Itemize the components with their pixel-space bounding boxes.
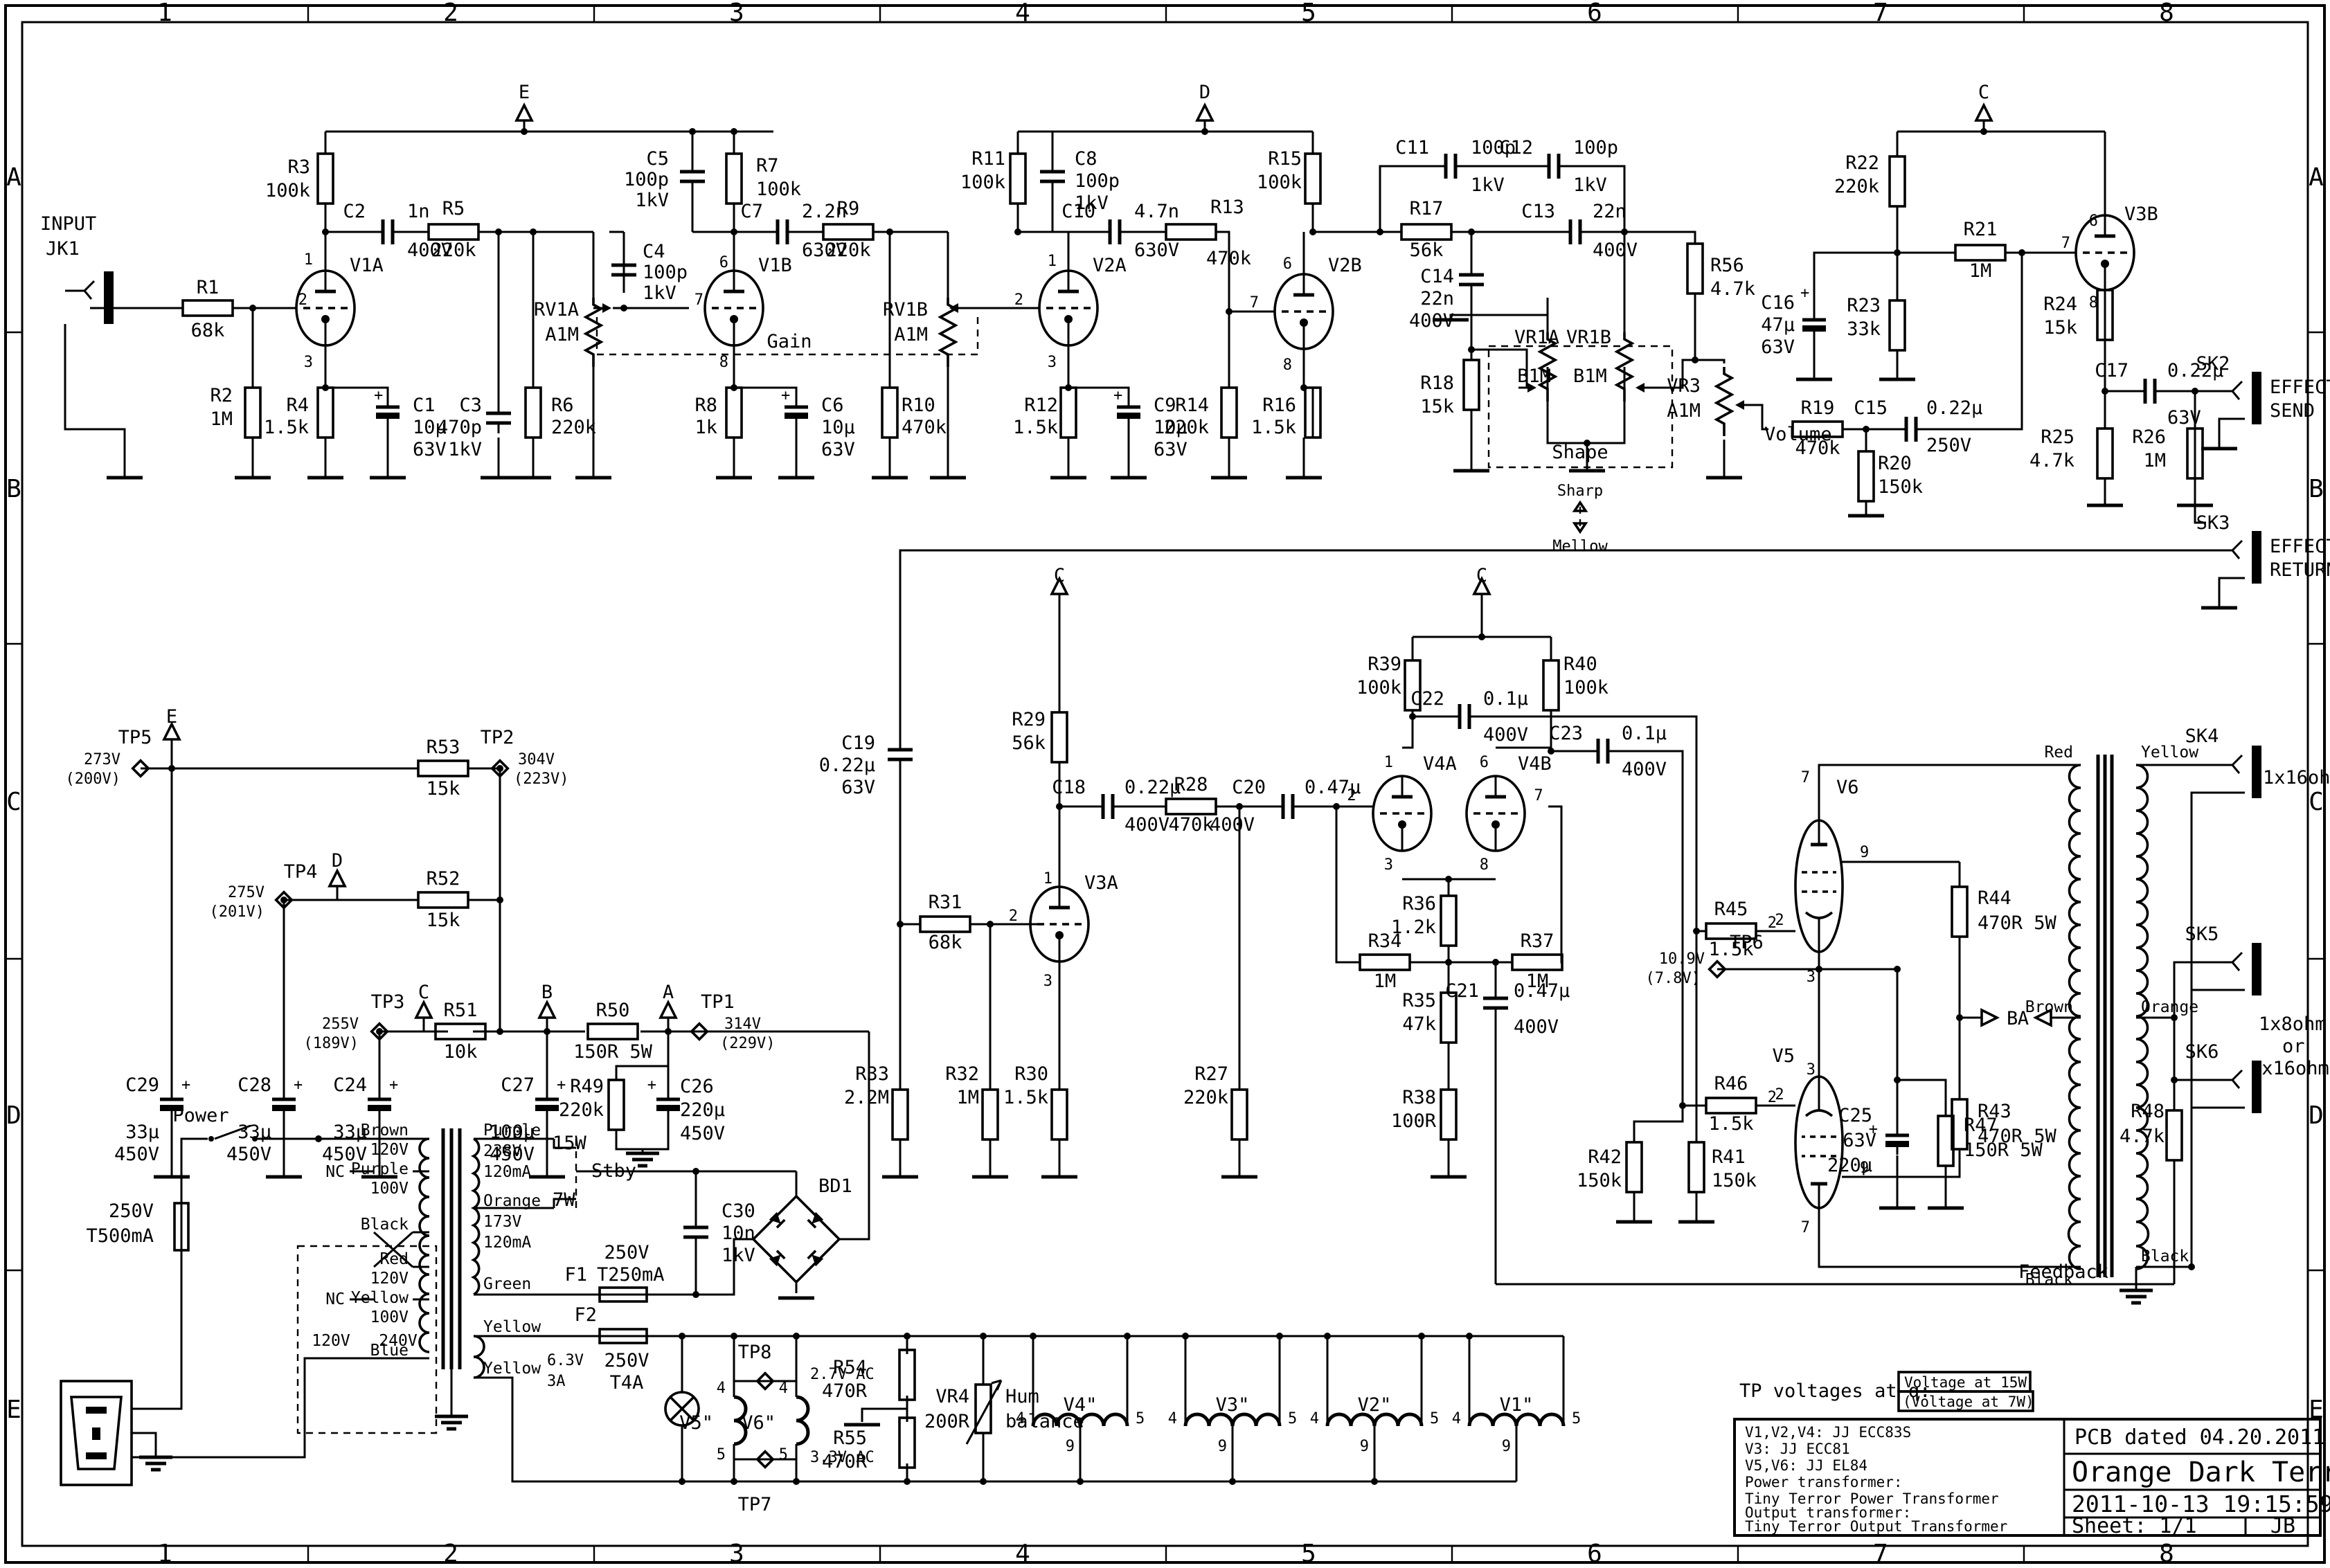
label-jk1: JK1 xyxy=(46,238,80,260)
label-c6v: 10µ xyxy=(821,417,855,438)
pin: 4 xyxy=(717,1380,726,1397)
label-c20u: 400V xyxy=(1210,814,1255,836)
label-r30v: 1.5k xyxy=(1003,1087,1048,1108)
label-r10v: 470k xyxy=(902,417,947,438)
label-stby: Stby xyxy=(591,1160,636,1182)
pt-120b: 120V xyxy=(370,1270,409,1288)
label-r51: R51 xyxy=(444,1000,478,1021)
cap-C11 xyxy=(1435,154,1466,179)
label-fx-ret-2: RETURN xyxy=(2270,559,2330,581)
resistor-R37 xyxy=(1512,955,1562,970)
label-c19: C19 xyxy=(841,732,875,754)
tube-V4B xyxy=(1467,776,1525,851)
col-4-bot: 4 xyxy=(1015,1540,1030,1568)
row-C-right: C xyxy=(2309,788,2324,816)
label-r20: R20 xyxy=(1878,453,1912,474)
pin: 4 xyxy=(1452,1410,1461,1427)
label-r12: R12 xyxy=(1024,395,1058,416)
label-r53: R53 xyxy=(427,737,460,758)
label-c1-plus: + xyxy=(374,387,383,404)
label-c29u: 450V xyxy=(114,1144,159,1165)
pin: 2 xyxy=(1014,291,1023,309)
label-or: or xyxy=(2282,1036,2305,1057)
label-r3: R3 xyxy=(287,156,310,178)
label-r17: R17 xyxy=(1410,198,1444,219)
label-r34v: 1M xyxy=(1374,971,1397,992)
label-r26v: 1M xyxy=(2143,450,2166,471)
label-sk4: SK4 xyxy=(2185,726,2219,747)
label-c30u: 1kV xyxy=(722,1245,755,1266)
pin: 7 xyxy=(1801,769,1810,786)
label-c2v: 1n xyxy=(407,201,430,222)
label-c18v: 0.22µ xyxy=(1124,777,1181,798)
net-E: E xyxy=(519,82,530,103)
label-c6: C6 xyxy=(821,395,844,416)
label-r21: R21 xyxy=(1964,219,1998,240)
ot-brown: Brown xyxy=(2025,998,2073,1016)
cap-C2 xyxy=(373,219,403,244)
label-c16: C16 xyxy=(1761,292,1795,314)
cap-C27 xyxy=(535,1091,559,1119)
label-r1: R1 xyxy=(197,277,219,298)
pin: 7 xyxy=(694,291,704,309)
col-8-top: 8 xyxy=(2159,0,2174,27)
label-r16v: 1.5k xyxy=(1251,417,1296,438)
pin: 1 xyxy=(304,251,313,269)
pin: 7 xyxy=(1250,294,1259,312)
cap-C24 xyxy=(368,1091,391,1119)
label-r13: R13 xyxy=(1210,197,1244,218)
cap-C10 xyxy=(1100,219,1130,244)
label-r50: R50 xyxy=(596,1000,630,1021)
label-c11: C11 xyxy=(1395,137,1429,159)
net-A-arrow-psu xyxy=(661,1002,676,1018)
label-c28: C28 xyxy=(238,1074,271,1096)
pin: 8 xyxy=(1480,856,1489,874)
input-jack-JK1 xyxy=(65,271,114,324)
label-power: Power xyxy=(172,1105,228,1126)
net-E-psu: E xyxy=(166,706,177,728)
label-bd1: BD1 xyxy=(818,1175,852,1197)
resistor-R33 xyxy=(893,1090,908,1139)
pin: 4 xyxy=(1168,1410,1177,1427)
resistor-R15 xyxy=(1305,154,1320,204)
label-v4h: V4" xyxy=(1064,1394,1097,1416)
pt-green: Green xyxy=(483,1275,531,1293)
cap-C21 xyxy=(1483,988,1508,1018)
label-r4: R4 xyxy=(286,395,309,416)
label-r35v: 47k xyxy=(1402,1013,1436,1035)
label-vr4v: 200R xyxy=(924,1411,970,1432)
label-vr3: VR3 xyxy=(1667,375,1701,397)
col-5-bot: 5 xyxy=(1301,1540,1316,1568)
label-tp3: TP3 xyxy=(371,991,405,1013)
row-A-left: A xyxy=(6,163,21,192)
pin: 5 xyxy=(1136,1410,1145,1427)
label-tp8: TP8 xyxy=(738,1342,772,1363)
label-r2v: 1M xyxy=(210,408,233,430)
label-r38: R38 xyxy=(1402,1087,1436,1108)
label-r34: R34 xyxy=(1368,930,1402,952)
resistor-R56 xyxy=(1687,244,1703,294)
pin: 3 xyxy=(304,354,313,371)
resistor-R12 xyxy=(1061,388,1076,438)
pt-100a: 100V xyxy=(370,1180,409,1198)
label-r38v: 100R xyxy=(1391,1110,1437,1132)
pin: 5 xyxy=(1572,1410,1581,1427)
label-r28: R28 xyxy=(1174,774,1208,795)
resistor-R31 xyxy=(920,917,970,932)
pt-sorange: Orange xyxy=(483,1192,541,1210)
resistor-R50 xyxy=(588,1024,638,1039)
tp-note-7w: (Voltage at 7W) xyxy=(1903,1394,2034,1410)
pt-63v: 6.3V xyxy=(547,1352,584,1369)
resistor-R44 xyxy=(1952,887,1967,937)
tube-V2A xyxy=(1039,271,1097,345)
pt-120a: 120V xyxy=(370,1141,409,1159)
label-c29v: 33µ xyxy=(125,1121,159,1143)
label-c8v: 100p xyxy=(1075,170,1120,192)
label-tp3-v1: 255V xyxy=(322,1016,359,1033)
resistor-R28 xyxy=(1166,799,1216,814)
label-f1: F1 xyxy=(564,1264,587,1286)
label-c14: C14 xyxy=(1420,266,1454,287)
resistor-R41 xyxy=(1689,1142,1704,1192)
label-tp5: TP5 xyxy=(118,727,152,748)
label-r27v: 220k xyxy=(1183,1087,1228,1108)
label-c21v: 0.47µ xyxy=(1514,980,1570,1002)
label-r28v: 470k xyxy=(1168,814,1213,836)
label-c27-plus: + xyxy=(557,1076,566,1094)
net-C-3: C xyxy=(1476,565,1487,586)
col-7-bot: 7 xyxy=(1873,1540,1888,1568)
pin: 1 xyxy=(1043,870,1052,887)
pin: 5 xyxy=(717,1446,726,1463)
cap-C8 xyxy=(1040,161,1065,192)
net-D-arrow xyxy=(1197,105,1212,120)
label-v3h: V3" xyxy=(1216,1394,1250,1416)
label-c17: C17 xyxy=(2095,360,2129,381)
pt-blue: Blue xyxy=(370,1342,409,1360)
label-c23u: 400V xyxy=(1622,759,1667,780)
cap-C20 xyxy=(1273,794,1303,819)
resistor-R53 xyxy=(418,761,468,776)
label-r31: R31 xyxy=(929,892,962,913)
pin: 9 xyxy=(1218,1438,1227,1455)
label-r56: R56 xyxy=(1710,255,1744,276)
pin: 4 xyxy=(1016,1410,1025,1427)
pin: 4 xyxy=(1310,1410,1319,1427)
label-r22: R22 xyxy=(1845,152,1879,174)
pin: 2 xyxy=(298,291,307,309)
cap-C13 xyxy=(1560,219,1590,244)
col-3-top: 3 xyxy=(729,0,744,27)
resistor-R18 xyxy=(1464,360,1479,410)
label-r51v: 10k xyxy=(444,1041,478,1063)
label-vr3v: A1M xyxy=(1667,400,1701,422)
label-fuse-v: 250V xyxy=(109,1200,154,1222)
row-D-right: D xyxy=(2309,1101,2324,1130)
label-c14v: 22n xyxy=(1420,288,1454,309)
label-c15: C15 xyxy=(1854,397,1888,419)
label-r7v: 100k xyxy=(756,179,801,200)
resistor-R40 xyxy=(1543,660,1559,710)
label-tp4: TP4 xyxy=(284,861,318,883)
label-c19v: 0.22µ xyxy=(819,755,875,776)
pot-VR1B-wiper xyxy=(1636,383,1654,393)
label-tp2-v1: 304V xyxy=(518,751,555,768)
resistor-R1 xyxy=(183,300,233,316)
label-r23v: 33k xyxy=(1847,318,1881,340)
label-r42: R42 xyxy=(1588,1146,1622,1168)
resistor-R3 xyxy=(318,154,333,204)
label-r4v: 1.5k xyxy=(264,417,309,438)
tube-V6 xyxy=(1795,820,1843,952)
label-r25v: 4.7k xyxy=(2029,450,2074,471)
label-r44: R44 xyxy=(1978,887,2011,909)
label-r45: R45 xyxy=(1714,899,1748,920)
label-v5: V5 xyxy=(1772,1045,1795,1067)
pt-spurple: Purple xyxy=(483,1121,541,1139)
net-D: D xyxy=(1199,82,1210,103)
junction-dots xyxy=(168,128,2198,1485)
label-15w: 15W xyxy=(553,1133,587,1154)
label-r23: R23 xyxy=(1847,295,1881,316)
title-block: V1,V2,V4: JJ ECC83S V3: JJ ECC81 V5,V6: … xyxy=(1735,1419,2330,1538)
resistor-R13 xyxy=(1166,224,1216,240)
label-r42v: 150k xyxy=(1577,1170,1622,1191)
pt-173: 173V xyxy=(483,1213,522,1231)
label-r12v: 1.5k xyxy=(1013,417,1058,438)
power-transformer xyxy=(420,1128,484,1378)
pin: 9 xyxy=(1066,1438,1075,1455)
cap-C14 xyxy=(1459,264,1484,295)
resistor-R25 xyxy=(2097,429,2113,478)
tb-author: JB xyxy=(2270,1514,2295,1538)
label-r15v: 100k xyxy=(1257,172,1302,193)
label-r7: R7 xyxy=(756,155,779,177)
label-c6u: 63V xyxy=(821,439,855,460)
label-fx-send-1: EFFECT xyxy=(2270,377,2330,398)
label-c1: C1 xyxy=(413,395,436,416)
label-r54v: 470R xyxy=(822,1380,868,1402)
label-c1u: 63V xyxy=(413,439,447,460)
label-c30: C30 xyxy=(722,1200,755,1222)
resistor-R38 xyxy=(1441,1090,1456,1139)
resistor-R34 xyxy=(1360,955,1410,970)
label-216ohm: 2x16ohm xyxy=(2250,1058,2329,1079)
pin: 2 xyxy=(1347,787,1356,804)
label-tp2-v2: (223V) xyxy=(514,771,568,788)
label-r53v: 15k xyxy=(427,778,460,800)
pt-238: 238V xyxy=(483,1142,522,1160)
cap-C5 xyxy=(680,161,705,192)
label-r32v: 1M xyxy=(956,1087,979,1108)
net-B-pa: B xyxy=(2007,1008,2018,1029)
label-c10v: 4.7n xyxy=(1134,201,1179,222)
cap-C25 xyxy=(1885,1127,1909,1155)
label-c18u: 400V xyxy=(1124,814,1170,836)
label-tp5-v1: 273V xyxy=(84,751,120,768)
pin: 3 xyxy=(1048,354,1057,371)
label-tp7: TP7 xyxy=(738,1494,772,1515)
label-r27: R27 xyxy=(1194,1063,1228,1085)
net-C-arrow-psu xyxy=(416,1002,431,1018)
col-4-top: 4 xyxy=(1015,0,1030,27)
label-c22u: 400V xyxy=(1483,724,1528,746)
label-v3a: V3A xyxy=(1084,872,1118,894)
cap-C15 xyxy=(1896,417,1926,442)
col-5-top: 5 xyxy=(1301,0,1316,27)
label-r13v: 470k xyxy=(1206,248,1251,269)
label-r50v: 150R 5W xyxy=(573,1041,653,1063)
label-r21v: 1M xyxy=(1969,260,1992,282)
row-A-right: A xyxy=(2309,163,2324,192)
label-c10: C10 xyxy=(1061,201,1095,222)
label-c26v: 220µ xyxy=(680,1099,725,1121)
label-r43v: 470R 5W xyxy=(1978,1126,2057,1147)
pt-purple: Purple xyxy=(351,1160,409,1178)
output-transformer xyxy=(2069,755,2149,1277)
col-3-bot: 3 xyxy=(729,1540,744,1568)
label-sk3: SK3 xyxy=(2196,512,2230,534)
label-c28-plus: + xyxy=(294,1076,303,1094)
label-f2: F2 xyxy=(574,1304,597,1326)
schematic-page: 1 2 3 4 5 6 7 8 1 2 3 4 5 6 7 8 A B C D … xyxy=(0,0,2330,1568)
fuse-F1 xyxy=(600,1288,647,1301)
label-c8: C8 xyxy=(1075,148,1097,170)
pin: 3 xyxy=(1807,968,1816,986)
label-rv1b: RV1B xyxy=(883,299,928,321)
label-c5: C5 xyxy=(646,148,669,170)
label-f1a: T250mA xyxy=(597,1264,665,1286)
resistor-R20 xyxy=(1858,451,1874,501)
resistor-R2 xyxy=(245,388,260,438)
cap-C7 xyxy=(767,219,798,244)
tb-ot-2: Tiny Terror Output Transformer xyxy=(1745,1518,2007,1535)
label-v5h: V5" xyxy=(679,1412,713,1434)
pt-120ma: 120mA xyxy=(483,1163,531,1181)
label-r18v: 15k xyxy=(1420,396,1454,417)
label-c1v: 10µ xyxy=(413,417,447,438)
col-1-bot: 1 xyxy=(157,1540,172,1568)
label-vr1a: VR1A xyxy=(1514,327,1559,348)
cap-C19 xyxy=(888,739,913,770)
label-c2: C2 xyxy=(343,201,366,222)
label-r36: R36 xyxy=(1402,893,1436,914)
label-r43: R43 xyxy=(1978,1101,2011,1122)
pin: 3 xyxy=(1043,973,1052,990)
pin: 6 xyxy=(1283,255,1292,273)
schematic-canvas: 1 2 3 4 5 6 7 8 1 2 3 4 5 6 7 8 A B C D … xyxy=(0,0,2330,1568)
label-c11u: 1kV xyxy=(1471,174,1505,196)
resistor-R14 xyxy=(1221,388,1237,438)
label-tp5-v2: (200V) xyxy=(66,771,120,788)
cap-C30 xyxy=(683,1217,708,1247)
col-2-top: 2 xyxy=(443,0,458,27)
rectifier-BD1 xyxy=(753,1196,839,1282)
resistor-R36 xyxy=(1441,896,1456,946)
label-r11v: 100k xyxy=(960,172,1005,193)
label-c25u: 63V xyxy=(1843,1130,1876,1151)
label-c4v: 100p xyxy=(643,262,688,283)
pin: 1 xyxy=(1048,253,1057,270)
label-rv1bv: A1M xyxy=(894,324,928,345)
label-r55: R55 xyxy=(833,1427,867,1449)
label-v2b: V2B xyxy=(1328,255,1362,276)
pin: 2 xyxy=(1768,1089,1777,1106)
label-tp1-v1: 314V xyxy=(724,1016,761,1033)
label-f2a: T4A xyxy=(610,1372,644,1394)
label-c6-plus: + xyxy=(781,387,790,404)
resistor-R32 xyxy=(983,1090,998,1139)
cap-C22 xyxy=(1449,704,1480,729)
label-v6: V6 xyxy=(1836,777,1859,798)
resistor-R21 xyxy=(1955,245,2005,260)
resistor-R46 xyxy=(1706,1098,1756,1113)
label-c5u: 1kV xyxy=(635,190,669,211)
label-input: INPUT xyxy=(40,213,96,235)
label-c12u: 1kV xyxy=(1573,174,1607,196)
label-c5v: 100p xyxy=(624,169,669,190)
label-vr1b-val: B1M xyxy=(1573,366,1607,387)
fuse-F2 xyxy=(600,1329,647,1343)
label-v4b: V4B xyxy=(1518,753,1552,775)
label-tp6-v1: 10.9V xyxy=(1659,950,1705,968)
label-c29: C29 xyxy=(125,1074,159,1096)
tube-V3A xyxy=(1030,887,1088,962)
pt-yellow: Yellow xyxy=(351,1289,409,1307)
pin: 9 xyxy=(1860,1160,1869,1177)
resistor-R49 xyxy=(609,1080,624,1130)
label-c3: C3 xyxy=(459,395,482,416)
pin: 7 xyxy=(2061,235,2070,252)
label-shape: Shape xyxy=(1552,442,1608,463)
label-r32: R32 xyxy=(945,1063,979,1085)
resistor-R10 xyxy=(882,388,897,438)
net-C-psu: C xyxy=(418,982,429,1003)
tube-V4A xyxy=(1373,776,1431,851)
label-r48: R48 xyxy=(2131,1101,2165,1122)
label-r8: R8 xyxy=(694,395,717,416)
ot-orange: Orange xyxy=(2141,998,2198,1016)
label-r39: R39 xyxy=(1368,654,1401,675)
pt-nc1: NC xyxy=(325,1163,345,1181)
col-6-bot: 6 xyxy=(1587,1540,1602,1568)
label-120v: 120V xyxy=(312,1332,350,1350)
label-r14v: 220k xyxy=(1164,417,1209,438)
resistor-R7 xyxy=(726,154,742,204)
label-c29-plus: + xyxy=(181,1076,190,1094)
label-tp4-v1: 275V xyxy=(228,884,265,901)
label-r16: R16 xyxy=(1262,395,1296,416)
label-r11: R11 xyxy=(971,148,1005,170)
label-rv1a: RV1A xyxy=(534,299,579,321)
label-c16v: 47µ xyxy=(1761,314,1795,336)
label-sk6: SK6 xyxy=(2185,1041,2219,1063)
row-E-left: E xyxy=(6,1396,21,1424)
label-c22: C22 xyxy=(1410,688,1444,710)
label-c9-plus: + xyxy=(1113,387,1122,404)
label-c25: C25 xyxy=(1838,1105,1872,1126)
label-c7: C7 xyxy=(740,201,763,222)
label-f2v: 250V xyxy=(604,1350,649,1371)
pt-brown: Brown xyxy=(361,1121,409,1139)
pot-VR3-wiper xyxy=(1735,400,1753,410)
cap-C12 xyxy=(1539,154,1569,179)
col-2-bot: 2 xyxy=(443,1540,458,1568)
net-C-arrow xyxy=(1976,105,1991,120)
